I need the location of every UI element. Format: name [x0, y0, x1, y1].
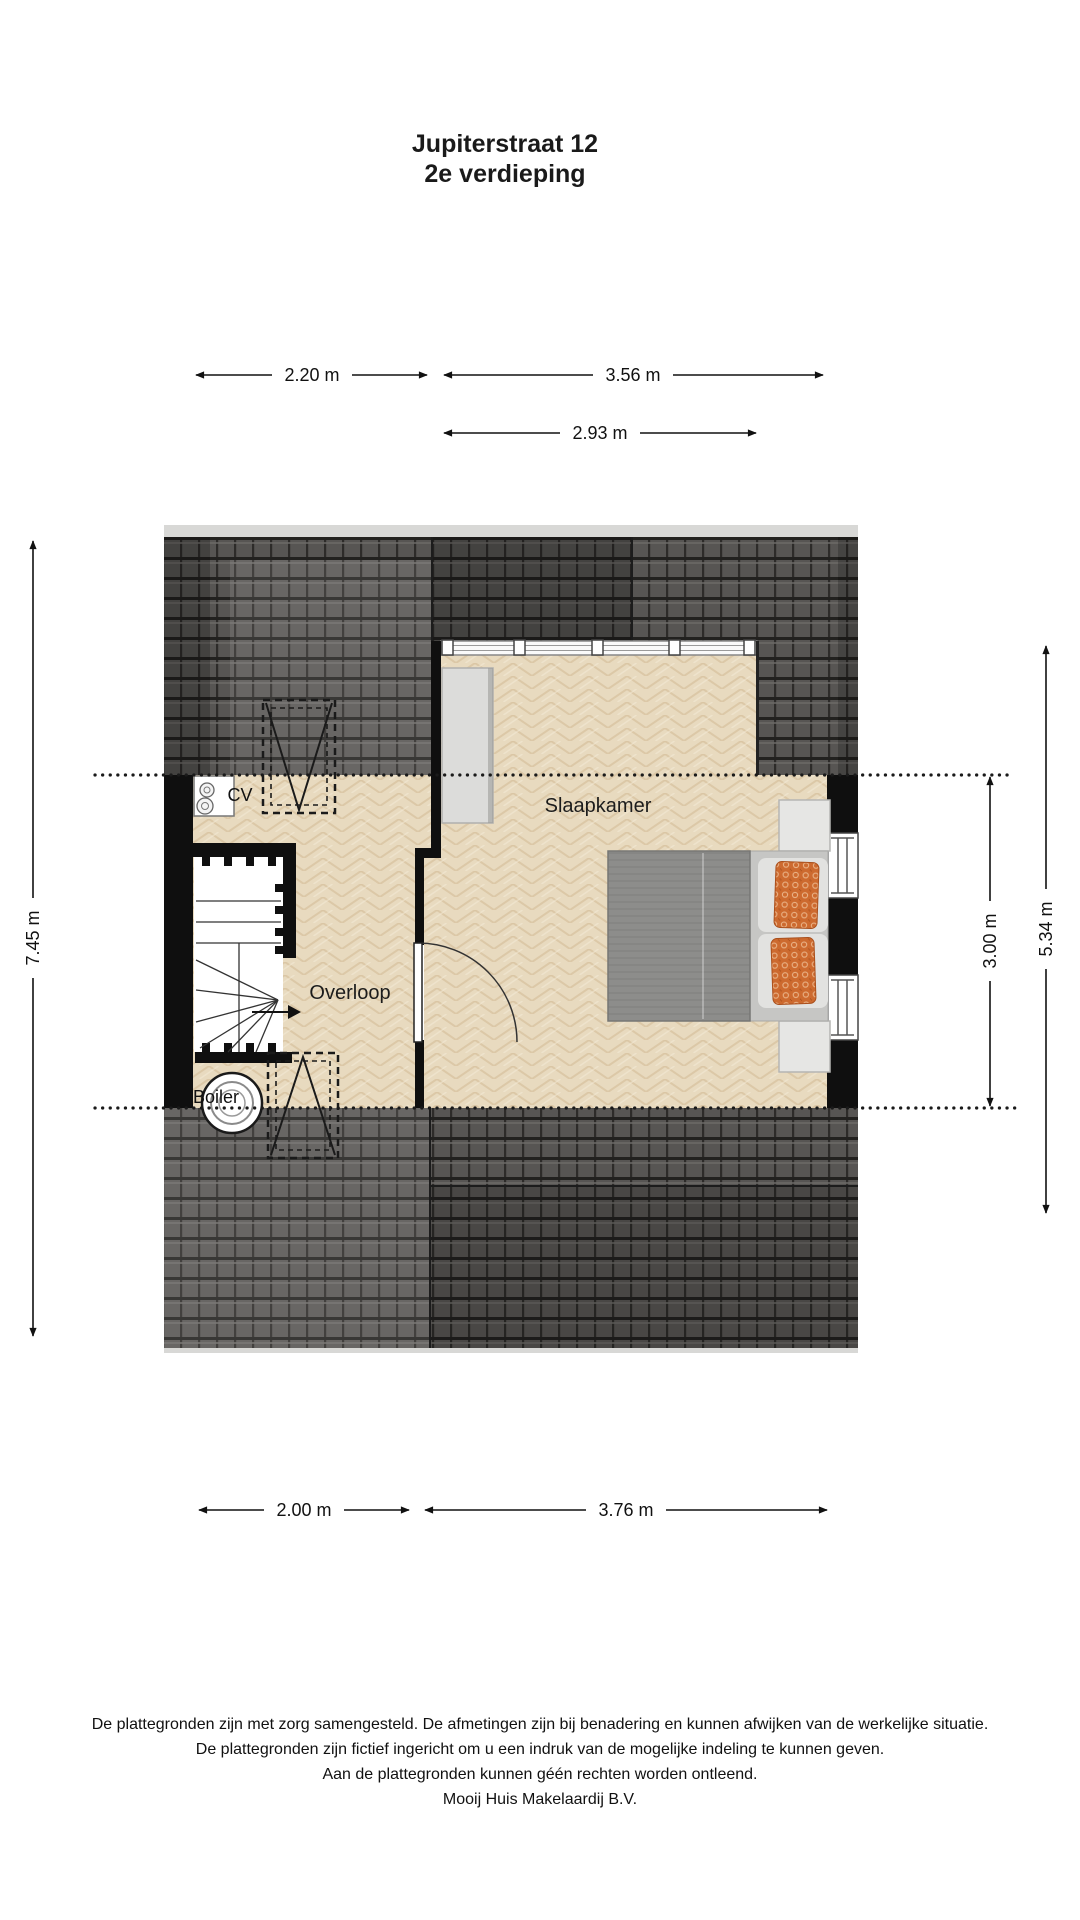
- dim-right-outer-height: 5.34 m: [1036, 901, 1056, 956]
- room-label-landing: Overloop: [309, 982, 390, 1004]
- wall-right-1: [827, 775, 858, 833]
- footer-line-4: Mooij Huis Makelaardij B.V.: [443, 1791, 637, 1808]
- fixture-label-boiler: Boiler: [193, 1087, 239, 1107]
- wall-bedroom-left: [431, 641, 441, 858]
- nightstand-top: [779, 800, 830, 851]
- dim-top-left: 2.20 m: [284, 365, 339, 385]
- title-floor: 2e verdieping: [424, 160, 585, 188]
- footer-line-2: De plattegronden zijn fictief ingericht …: [196, 1741, 884, 1758]
- nightstand-bottom: [779, 1021, 830, 1072]
- title-address: Jupiterstraat 12: [412, 130, 598, 158]
- window-right-2: [828, 975, 858, 1040]
- wall-above-door: [415, 848, 424, 945]
- dim-dormer-width: 2.93 m: [572, 423, 627, 443]
- floorplan-drawing: Jupiterstraat 12 2e verdieping: [0, 0, 1080, 1920]
- burner-icon: [200, 783, 214, 797]
- dim-bottom-right: 3.76 m: [598, 1500, 653, 1520]
- wall-right-2: [827, 898, 858, 975]
- footer-disclaimer: De plattegronden zijn met zorg samengest…: [92, 1716, 989, 1808]
- dim-bottom-left: 2.00 m: [276, 1500, 331, 1520]
- wall-left: [164, 775, 193, 1108]
- wall-right-3: [827, 1040, 858, 1108]
- footer-line-1: De plattegronden zijn met zorg samengest…: [92, 1716, 989, 1733]
- floorplan-page: Jupiterstraat 12 2e verdieping: [0, 0, 1080, 1920]
- fixture-label-cv: CV: [227, 785, 252, 805]
- window-right-1: [828, 833, 858, 898]
- floorplan-body: Slaapkamer Overloop CV Boiler: [164, 525, 858, 1353]
- dim-right-inner-height: 3.00 m: [980, 913, 1000, 968]
- duvet: [608, 851, 750, 1021]
- wall-below-door: [415, 1040, 424, 1108]
- wardrobe: [442, 668, 493, 823]
- dim-top-right: 3.56 m: [605, 365, 660, 385]
- roof-top-edge: [164, 525, 858, 537]
- burner-icon: [197, 798, 213, 814]
- roof-bottom-edge: [164, 1348, 858, 1353]
- door-leaf: [414, 943, 422, 1042]
- dim-left-height: 7.45 m: [23, 910, 43, 965]
- room-label-bedroom: Slaapkamer: [545, 795, 652, 817]
- pillow-orange-bottom: [771, 937, 816, 1004]
- page-title: Jupiterstraat 12 2e verdieping: [412, 130, 598, 188]
- pillow-orange-top: [774, 861, 819, 928]
- footer-line-3: Aan de plattegronden kunnen géén rechten…: [322, 1766, 757, 1783]
